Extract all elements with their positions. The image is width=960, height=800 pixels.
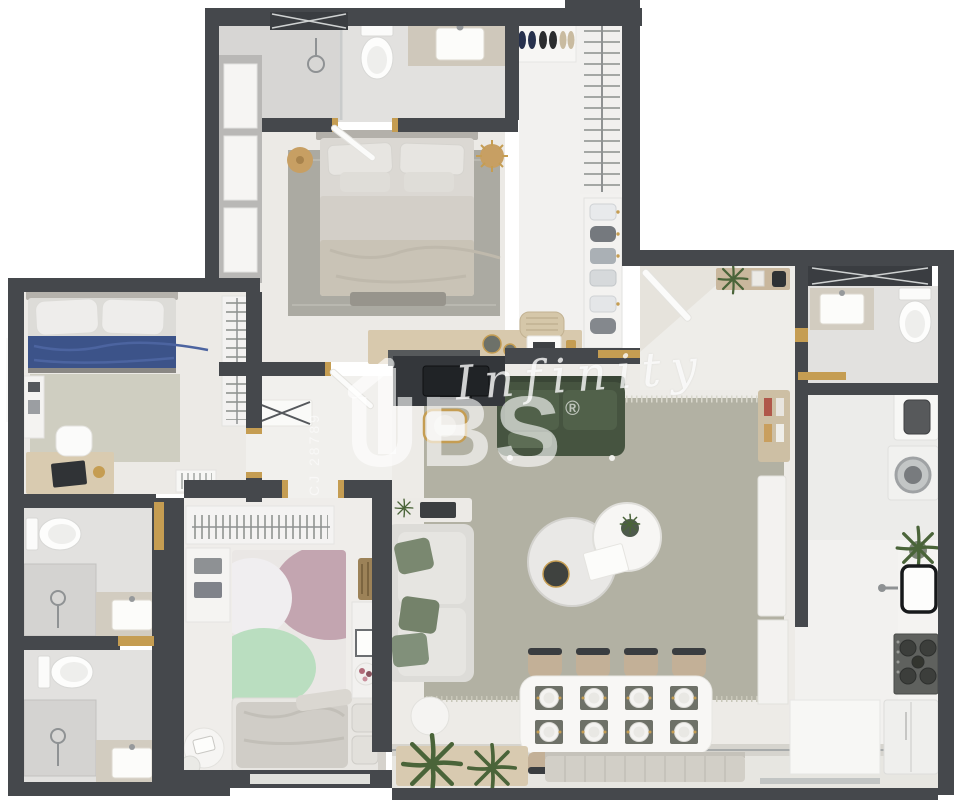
balcony-bench <box>545 752 745 782</box>
bar-shelf <box>758 390 790 462</box>
cooktop <box>894 634 938 694</box>
plant-icon <box>403 735 461 793</box>
shower <box>24 564 96 636</box>
bed-bench <box>350 292 446 306</box>
laundry-tank <box>894 392 938 440</box>
plant-icon <box>469 745 515 791</box>
kids-shelf-left <box>186 548 230 622</box>
fridge <box>884 700 938 774</box>
entry-console <box>716 265 790 294</box>
guest-vanity <box>810 288 874 330</box>
kitchen-cabinets <box>790 700 880 774</box>
closet-drawers <box>584 198 622 348</box>
bedroom2-rug <box>30 374 180 462</box>
gray-sofa <box>386 498 474 682</box>
deck-board <box>760 778 880 784</box>
toilet-icon <box>361 24 393 79</box>
toilet-icon <box>899 288 931 343</box>
kids-bed <box>232 688 386 772</box>
decor-bowl <box>543 561 569 587</box>
kids-wardrobe <box>186 506 334 544</box>
floor-plan-graphic <box>0 0 960 800</box>
plant-icon <box>897 527 939 569</box>
bag-icon <box>772 271 786 287</box>
toilet-icon <box>38 656 93 688</box>
ottoman <box>411 697 449 735</box>
bathroom3-door <box>118 636 154 646</box>
shower-head-icon <box>308 56 324 72</box>
floor-plan-image: Infinity U BS ® CJ 28789 <box>0 0 960 800</box>
sideboard <box>758 476 786 616</box>
toilet-icon <box>26 518 81 550</box>
rattan-chair <box>520 312 564 338</box>
lower-cabinet <box>758 620 788 704</box>
master-bed <box>316 130 500 306</box>
washing-machine <box>888 446 938 500</box>
laundry <box>888 392 938 500</box>
laptop-icon <box>51 460 87 487</box>
desk-chair <box>56 426 92 456</box>
double-vanity <box>408 20 518 66</box>
balcony-door-glass <box>250 774 370 784</box>
shower <box>24 700 96 776</box>
green-sofa <box>497 376 625 461</box>
tv-icon <box>423 366 489 396</box>
bathroom2-door <box>154 502 164 550</box>
